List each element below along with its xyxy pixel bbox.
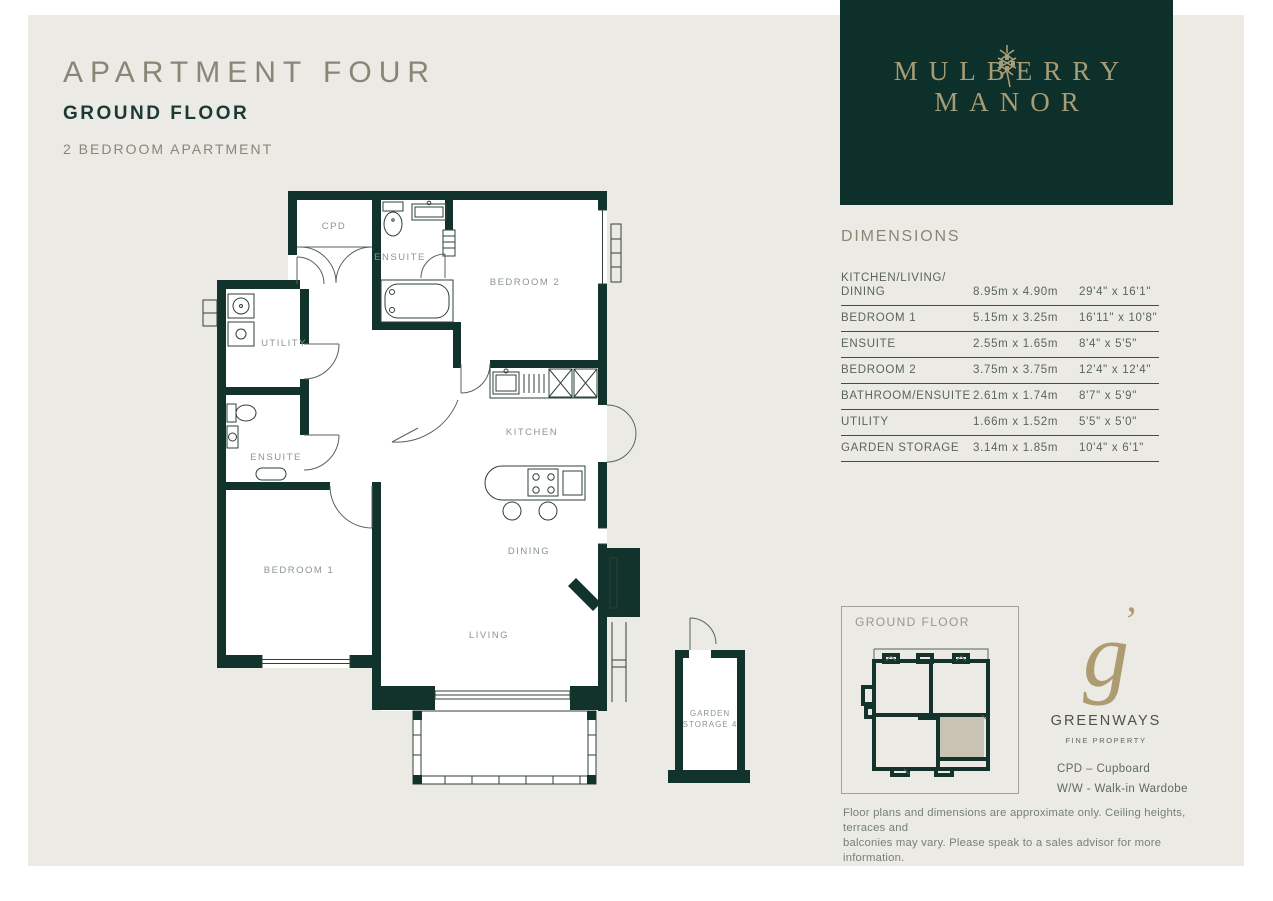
table-row: BEDROOM 2 3.75m x 3.75m 12'4" x 12'4" [841, 358, 1159, 384]
monogram-ear: ’ [1125, 606, 1138, 636]
room-name: KITCHEN/LIVING/ DINING [841, 271, 973, 299]
room-name: GARDEN STORAGE [841, 441, 973, 455]
brochure-page: APARTMENT FOUR GROUND FLOOR 2 BEDROOM AP… [0, 0, 1273, 901]
room-label-bedroom1: BEDROOM 1 [264, 565, 335, 576]
table-row: GARDEN STORAGE 3.14m x 1.85m 10'4" x 6'1… [841, 436, 1159, 462]
room-name: BEDROOM 2 [841, 363, 973, 377]
key-plan-label: GROUND FLOOR [855, 615, 970, 629]
table-row: BATHROOM/ENSUITE 2.61m x 1.74m 8'7" x 5'… [841, 384, 1159, 410]
metric-size: 3.14m x 1.85m [973, 441, 1079, 455]
key-plan-map [842, 631, 1018, 791]
plan-legend: CPD – Cupboard W/W - Walk-in Wardobe [1057, 759, 1188, 799]
table-row: BEDROOM 1 5.15m x 3.25m 16'11" x 10'8" [841, 306, 1159, 332]
room-label-ensuite-top: ENSUITE [374, 252, 426, 263]
room-name: BEDROOM 1 [841, 311, 973, 325]
room-label-living: LIVING [469, 630, 509, 641]
table-row: ENSUITE 2.55m x 1.65m 8'4" x 5'5" [841, 332, 1159, 358]
brand-panel: MULBERRY MANOR [840, 0, 1173, 205]
dimensions-table: KITCHEN/LIVING/ DINING 8.95m x 4.90m 29'… [841, 266, 1159, 462]
sliding-door [435, 691, 570, 699]
metric-size: 5.15m x 3.25m [973, 311, 1079, 325]
imperial-size: 16'11" x 10'8" [1079, 311, 1159, 325]
room-name: ENSUITE [841, 337, 973, 351]
greenways-monogram-icon: g’ [1076, 600, 1136, 710]
floor-subtitle: GROUND FLOOR [63, 103, 249, 125]
room-label-kitchen: KITCHEN [506, 427, 558, 438]
agent-name: GREENWAYS [1030, 713, 1182, 729]
room-name: UTILITY [841, 415, 973, 429]
imperial-size: 10'4" x 6'1" [1079, 441, 1159, 455]
legend-item: CPD – Cupboard [1057, 759, 1188, 779]
metric-size: 2.55m x 1.65m [973, 337, 1079, 351]
room-label-garden-storage: GARDEN [690, 709, 730, 718]
metric-size: 3.75m x 3.75m [973, 363, 1079, 377]
key-plan-box: GROUND FLOOR [841, 606, 1019, 794]
room-label-dining: DINING [508, 546, 550, 557]
mulberry-branch-icon [994, 44, 1020, 88]
agent-tagline: FINE PROPERTY [1030, 736, 1182, 745]
disclaimer-line: Floor plans and dimensions are approxima… [843, 806, 1188, 836]
table-row: KITCHEN/LIVING/ DINING 8.95m x 4.90m 29'… [841, 266, 1159, 306]
disclaimer-line: balconies may vary. Please speak to a sa… [843, 836, 1188, 866]
floor-plan: CPD ENSUITE BEDROOM 2 UTILITY ENSUITE KI… [200, 180, 760, 800]
room-label-bedroom2: BEDROOM 2 [490, 277, 561, 288]
table-row: UTILITY 1.66m x 1.52m 5'5" x 5'0" [841, 410, 1159, 436]
metric-size: 2.61m x 1.74m [973, 389, 1079, 403]
page-title: APARTMENT FOUR [63, 56, 436, 90]
room-name: BATHROOM/ENSUITE [841, 389, 973, 403]
brand-name-line2: MANOR [840, 87, 1173, 118]
imperial-size: 12'4" x 12'4" [1079, 363, 1159, 377]
room-label-cpd: CPD [322, 221, 347, 232]
room-label-garden-storage: STORAGE 4 [683, 720, 738, 729]
dimensions-heading: DIMENSIONS [841, 228, 960, 246]
imperial-size: 8'4" x 5'5" [1079, 337, 1159, 351]
imperial-size: 5'5" x 5'0" [1079, 415, 1159, 429]
metric-size: 8.95m x 4.90m [973, 285, 1079, 299]
room-label-utility: UTILITY [261, 338, 307, 349]
legend-item: W/W - Walk-in Wardobe [1057, 779, 1188, 799]
apartment-type: 2 BEDROOM APARTMENT [63, 141, 273, 157]
imperial-size: 29'4" x 16'1" [1079, 285, 1159, 299]
disclaimer-text: Floor plans and dimensions are approxima… [843, 806, 1188, 866]
metric-size: 1.66m x 1.52m [973, 415, 1079, 429]
imperial-size: 8'7" x 5'9" [1079, 389, 1159, 403]
room-label-ensuite-left: ENSUITE [250, 452, 302, 463]
